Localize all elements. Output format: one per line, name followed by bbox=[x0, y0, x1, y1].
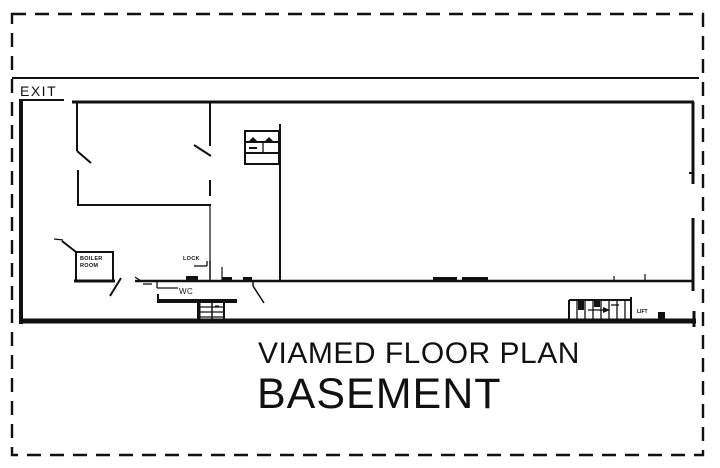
door-swing bbox=[253, 286, 264, 303]
lock-label: LOCK bbox=[183, 257, 200, 263]
wc-label: WC bbox=[179, 288, 193, 296]
door-swing bbox=[62, 241, 76, 252]
interior-walls bbox=[77, 102, 693, 303]
lift-shaft-block bbox=[658, 312, 665, 322]
outer-walls bbox=[19, 100, 696, 327]
door-swing bbox=[77, 151, 91, 163]
boiler-room-label-line1: BOILER bbox=[80, 256, 103, 263]
door-swing bbox=[194, 145, 211, 156]
scanned-floor-plan-sheet: EXIT BOILER ROOM LOCK WC LIFT VIAMED FLO… bbox=[0, 0, 720, 468]
staircase-upper bbox=[245, 131, 279, 164]
boiler-room-label-line2: ROOM bbox=[80, 263, 103, 270]
exit-label: EXIT bbox=[20, 84, 57, 98]
boiler-room-label: BOILER ROOM bbox=[80, 256, 103, 270]
lift-label: LIFT bbox=[637, 310, 648, 315]
stair-up-arrow bbox=[265, 137, 273, 141]
drawing-title-main: BASEMENT bbox=[257, 373, 502, 416]
staircase-lower-right bbox=[569, 297, 665, 322]
stair-up-arrow bbox=[249, 137, 257, 141]
drawing-title-subtitle: VIAMED FLOOR PLAN bbox=[258, 339, 580, 369]
